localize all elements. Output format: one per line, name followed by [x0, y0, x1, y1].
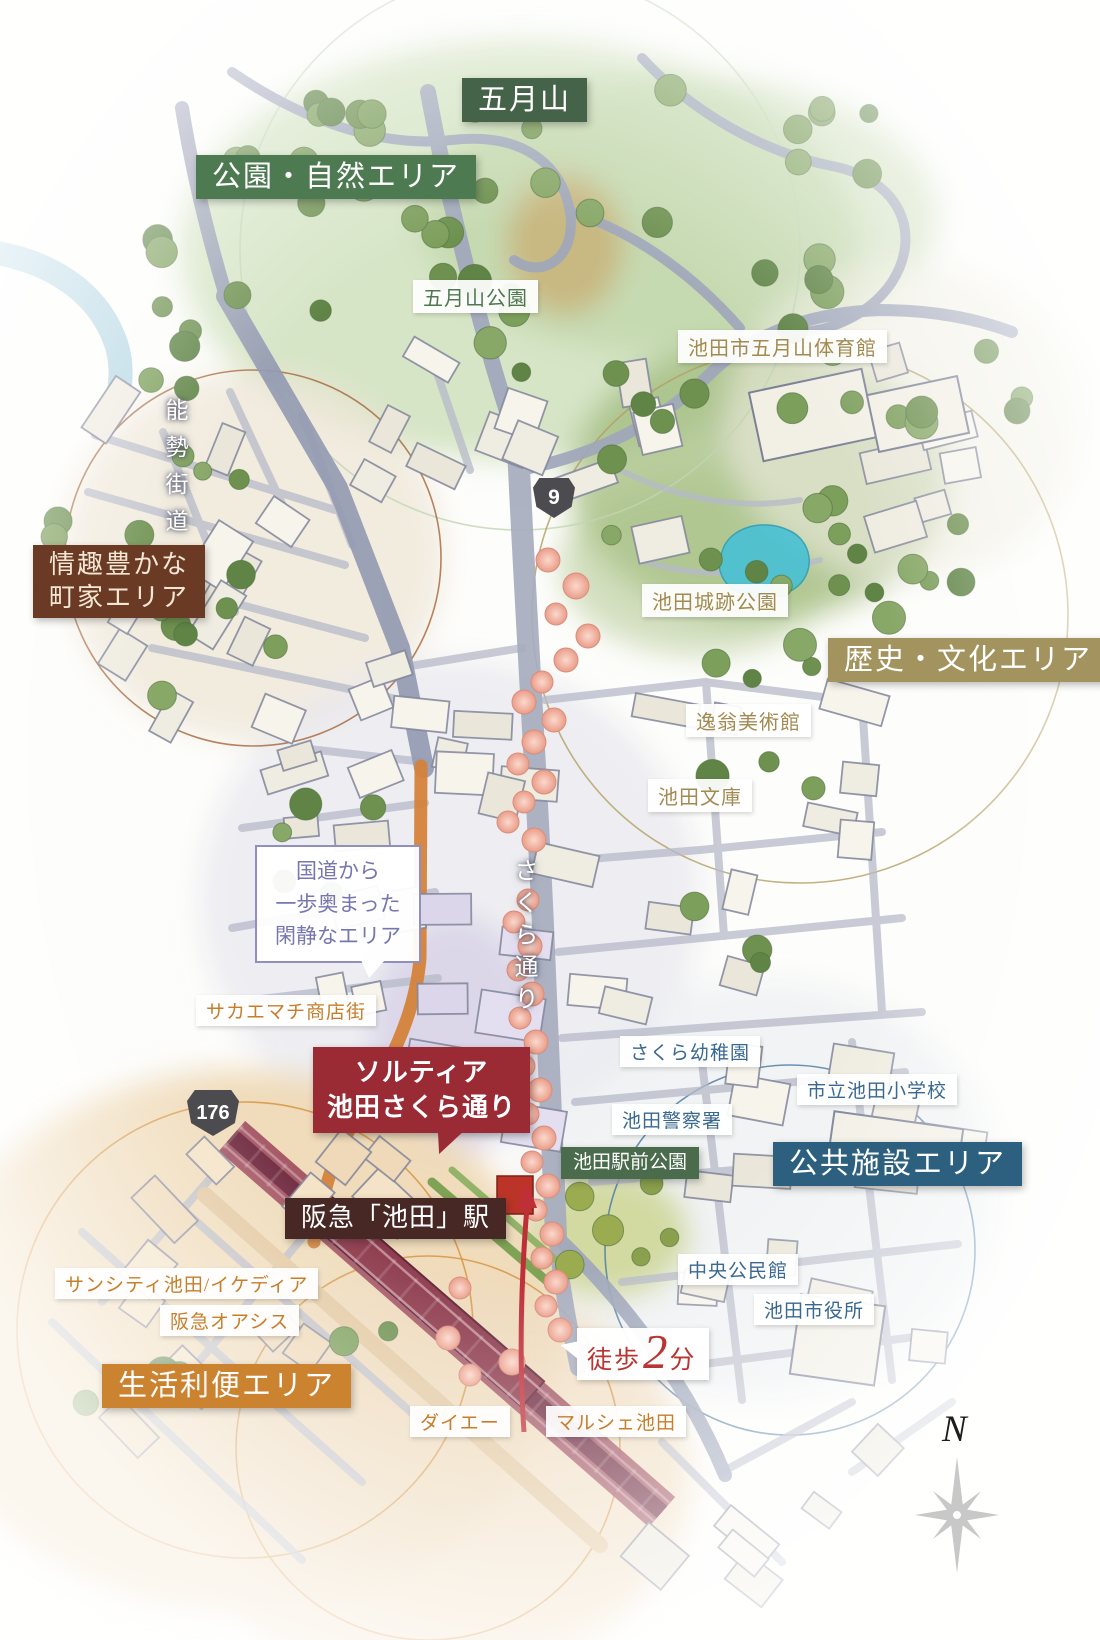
compass-north-letter: N: [942, 1408, 967, 1451]
region-label-public-facility: 公共施設エリア: [773, 1142, 1022, 1186]
river: [0, 252, 121, 414]
road-label-nose-kaido: 能勢街道: [157, 398, 191, 546]
poi-label-suncity: サンシティ池田/イケディア: [55, 1268, 318, 1299]
poi-label-hankyu-oasis: 阪急オアシス: [160, 1305, 299, 1336]
poi-label-ekimae-park: 池田駅前公園: [561, 1147, 699, 1179]
poi-label-satsukiyama-park: 五月山公園: [413, 280, 538, 313]
poi-label-itsuo-museum: 逸翁美術館: [686, 704, 811, 737]
region-label-history-culture: 歴史・文化エリア: [828, 638, 1100, 682]
poi-label-marche-ikeda: マルシェ池田: [546, 1406, 686, 1437]
compass-star: [909, 1457, 1005, 1573]
poi-label-elementary-school: 市立池田小学校: [797, 1074, 957, 1105]
quiet-area-callout: 国道から 一歩奥まった 閑静なエリア: [255, 845, 421, 963]
poi-label-sakura-kindergarten: さくら幼稚園: [620, 1036, 760, 1067]
road-label-sakura-dori: さくら通り: [506, 858, 541, 1018]
poi-label-gymnasium: 池田市五月山体育館: [678, 330, 887, 363]
region-label-satsukiyama: 五月山: [462, 78, 587, 122]
poi-label-castle-park: 池田城跡公園: [642, 584, 788, 617]
region-label-life-convenience: 生活利便エリア: [102, 1364, 351, 1408]
walk-time-badge: 徒歩2分: [577, 1328, 709, 1380]
region-label-machiya: 情趣豊かな 町家エリア: [33, 545, 205, 618]
poi-label-community-center: 中央公民館: [678, 1254, 798, 1285]
illustrated-location-map: 五月山 公園・自然エリア 五月山公園 池田市五月山体育館 能勢街道 情趣豊かな …: [0, 0, 1100, 1640]
road-label-sakaemachi: サカエマチ商店街: [196, 995, 376, 1026]
station-label: 阪急「池田」駅: [285, 1198, 506, 1239]
poi-label-daiei: ダイエー: [410, 1406, 510, 1437]
poi-label-city-hall: 池田市役所: [754, 1294, 874, 1325]
poi-label-ikeda-bunko: 池田文庫: [648, 779, 752, 812]
property-label: ソルティア 池田さくら通り: [313, 1047, 530, 1133]
poi-label-police-station: 池田警察署: [612, 1104, 732, 1135]
region-label-park-nature: 公園・自然エリア: [196, 155, 476, 199]
